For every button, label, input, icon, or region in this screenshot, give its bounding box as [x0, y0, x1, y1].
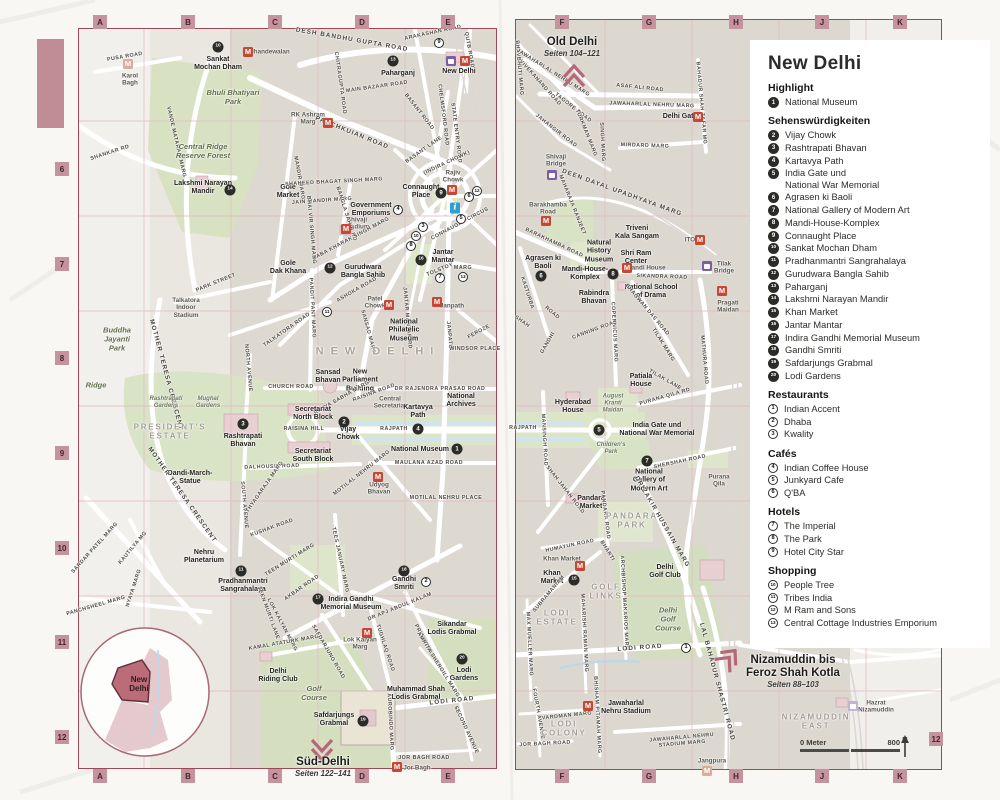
- grid-reference: H: [729, 769, 743, 783]
- grid-reference: K: [893, 769, 907, 783]
- grid-reference: E: [441, 15, 455, 29]
- grid-reference: H: [729, 15, 743, 29]
- grid-reference: K: [893, 15, 907, 29]
- grid-reference: 8: [55, 351, 69, 365]
- grid-reference: G: [642, 769, 656, 783]
- grid-reference: B: [181, 15, 195, 29]
- grid-reference: F: [555, 769, 569, 783]
- grid-reference: G: [642, 15, 656, 29]
- grid-reference: 11: [55, 635, 69, 649]
- grid-reference: C: [268, 769, 282, 783]
- grid-reference: F: [555, 15, 569, 29]
- grid-label-layer: AABBCCDDEEFFGGHHJJKK678910111212: [0, 0, 1000, 800]
- grid-reference: 9: [55, 446, 69, 460]
- grid-reference: J: [815, 15, 829, 29]
- grid-reference: D: [355, 769, 369, 783]
- grid-reference: 12: [55, 730, 69, 744]
- grid-reference: 7: [55, 257, 69, 271]
- grid-reference: 12: [929, 732, 943, 746]
- grid-reference: 6: [55, 162, 69, 176]
- grid-reference: B: [181, 769, 195, 783]
- grid-reference: A: [93, 769, 107, 783]
- map-page: PUSA ROADKarol BaghSHANKAR RDVANDE MATAR…: [0, 0, 1000, 800]
- grid-reference: C: [268, 15, 282, 29]
- grid-reference: E: [441, 769, 455, 783]
- grid-reference: 10: [55, 541, 69, 555]
- grid-reference: A: [93, 15, 107, 29]
- grid-reference: J: [815, 769, 829, 783]
- grid-reference: D: [355, 15, 369, 29]
